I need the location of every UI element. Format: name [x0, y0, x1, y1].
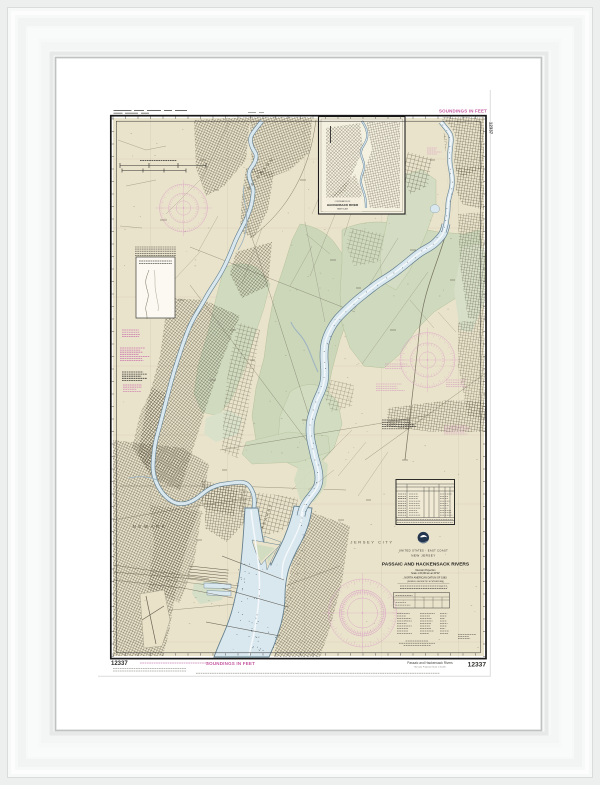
svg-text:JERSEY CITY: JERSEY CITY: [350, 540, 393, 545]
svg-text:Scale 1:15,000 at Lat 40°42': Scale 1:15,000 at Lat 40°42': [411, 572, 440, 575]
svg-text:SOUNDINGS IN FEET: SOUNDINGS IN FEET: [439, 109, 487, 114]
svg-text:CONTINUATION OF: CONTINUATION OF: [335, 200, 351, 203]
svg-text:(WORLD GEODETIC SYSTEM 1984): (WORLD GEODETIC SYSTEM 1984): [407, 581, 444, 583]
svg-text:Passaic and Hackensack Rivers: Passaic and Hackensack Rivers: [407, 661, 453, 665]
svg-text:Mercator Projection Scale 1:1: Mercator Projection Scale 1:15,000: [414, 666, 446, 669]
svg-text:PASSAIC AND HACKENSACK RIVERS: PASSAIC AND HACKENSACK RIVERS: [382, 562, 470, 568]
svg-text:NORTH AMERICAN DATUM OF 1983: NORTH AMERICAN DATUM OF 1983: [404, 577, 447, 580]
svg-text:12337: 12337: [489, 122, 494, 135]
svg-text:SOUNDINGS IN FEET: SOUNDINGS IN FEET: [206, 661, 255, 666]
svg-text:SAME SCALE: SAME SCALE: [337, 208, 349, 211]
svg-text:12337: 12337: [111, 661, 128, 667]
svg-text:Mercator Projection: Mercator Projection: [416, 569, 437, 572]
svg-text:HACKENSACK RIVER: HACKENSACK RIVER: [327, 203, 359, 207]
svg-text:NEWARK: NEWARK: [133, 524, 168, 529]
svg-text:12337: 12337: [468, 662, 487, 669]
svg-text:UNITED STATES - EAST COAST: UNITED STATES - EAST COAST: [399, 549, 448, 553]
svg-text:NEW JERSEY: NEW JERSEY: [411, 554, 436, 558]
